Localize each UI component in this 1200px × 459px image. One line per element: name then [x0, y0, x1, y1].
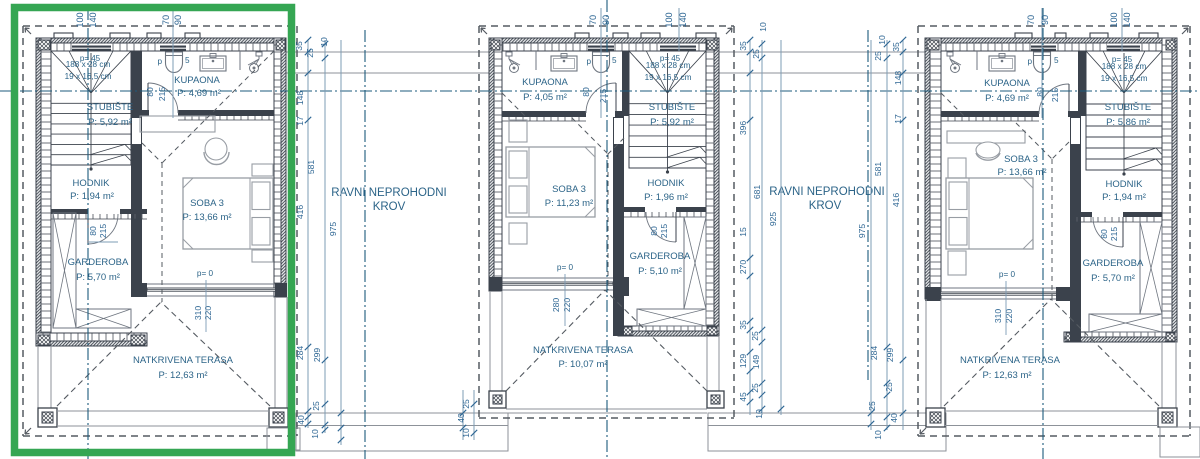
svg-text:70: 70: [161, 15, 171, 25]
svg-text:35: 35: [294, 41, 304, 51]
svg-text:148: 148: [893, 71, 903, 86]
svg-text:P: 4,69 m²: P: 4,69 m²: [177, 88, 221, 99]
svg-text:GARDEROBA: GARDEROBA: [68, 257, 129, 268]
svg-text:148: 148: [295, 91, 305, 106]
svg-text:299: 299: [312, 348, 322, 363]
svg-text:5: 5: [1054, 56, 1059, 65]
svg-text:35: 35: [738, 320, 748, 330]
svg-text:RAVNI NEPROHODNI: RAVNI NEPROHODNI: [331, 187, 446, 199]
svg-text:25: 25: [750, 331, 760, 341]
svg-text:25: 25: [311, 401, 321, 411]
svg-text:P: 1,96 m²: P: 1,96 m²: [644, 192, 688, 203]
svg-text:NATKRIVENA TERASA: NATKRIVENA TERASA: [533, 345, 634, 356]
svg-text:40: 40: [889, 413, 899, 423]
svg-text:p= 0: p= 0: [557, 263, 574, 272]
svg-text:19 x 16,5 cm: 19 x 16,5 cm: [1101, 74, 1148, 83]
svg-text:STUBIŠTE: STUBIŠTE: [87, 102, 133, 113]
svg-text:220: 220: [203, 306, 213, 321]
svg-text:25: 25: [884, 382, 894, 392]
svg-text:280: 280: [551, 298, 561, 313]
svg-text:p: p: [1027, 57, 1032, 66]
svg-text:p= 0: p= 0: [197, 269, 214, 278]
svg-text:299: 299: [885, 348, 895, 363]
svg-text:P: 5,10 m²: P: 5,10 m²: [638, 266, 682, 277]
svg-text:25: 25: [867, 401, 877, 411]
svg-text:10: 10: [461, 428, 471, 438]
svg-text:10: 10: [758, 22, 768, 32]
svg-text:P: 12,63 m²: P: 12,63 m²: [982, 370, 1031, 381]
svg-text:80: 80: [145, 87, 155, 97]
svg-text:P: 10,07 m²: P: 10,07 m²: [558, 359, 607, 370]
svg-text:KROV: KROV: [373, 201, 406, 213]
svg-text:KUPAONA: KUPAONA: [984, 78, 1030, 89]
svg-text:P: 5,92 m²: P: 5,92 m²: [88, 117, 132, 128]
svg-text:140: 140: [1122, 12, 1132, 27]
svg-text:188 x 28 cm: 188 x 28 cm: [646, 61, 691, 70]
svg-text:NATKRIVENA TERASA: NATKRIVENA TERASA: [133, 355, 234, 366]
svg-text:17: 17: [295, 116, 305, 126]
svg-text:p: p: [157, 57, 162, 66]
svg-text:70: 70: [1026, 15, 1036, 25]
svg-text:10: 10: [310, 429, 320, 439]
svg-text:P: 13,66 m²: P: 13,66 m²: [997, 167, 1046, 178]
svg-text:GARDEROBA: GARDEROBA: [1083, 258, 1144, 269]
svg-text:45: 45: [738, 392, 748, 402]
svg-text:975: 975: [857, 224, 867, 239]
svg-text:P: 5,70 m²: P: 5,70 m²: [76, 272, 120, 283]
svg-text:P: 4,05 m²: P: 4,05 m²: [523, 92, 567, 103]
svg-text:90: 90: [601, 15, 611, 25]
svg-text:581: 581: [306, 160, 316, 175]
svg-text:HODNIK: HODNIK: [73, 178, 111, 189]
svg-text:p: p: [586, 57, 591, 66]
svg-text:GARDEROBA: GARDEROBA: [630, 251, 691, 262]
svg-text:220: 220: [1004, 309, 1014, 324]
svg-text:HODNIK: HODNIK: [648, 178, 686, 189]
svg-text:P: 13,66 m²: P: 13,66 m²: [182, 212, 231, 223]
svg-text:P: 12,63 m²: P: 12,63 m²: [158, 370, 207, 381]
svg-text:220: 220: [562, 298, 572, 313]
svg-text:SOBA 3: SOBA 3: [190, 198, 224, 209]
svg-text:15: 15: [738, 227, 748, 237]
svg-text:581: 581: [873, 162, 883, 177]
svg-text:25: 25: [751, 49, 761, 59]
svg-text:270: 270: [738, 260, 748, 275]
svg-text:35: 35: [891, 42, 901, 52]
svg-text:19 x 16,5 cm: 19 x 16,5 cm: [645, 73, 692, 82]
svg-text:35: 35: [738, 41, 748, 51]
svg-text:STUBIŠTE: STUBIŠTE: [649, 102, 695, 113]
svg-text:80: 80: [88, 226, 98, 236]
svg-text:215: 215: [157, 87, 167, 102]
svg-text:215: 215: [1109, 227, 1119, 242]
svg-text:40: 40: [296, 415, 306, 425]
svg-text:KUPAONA: KUPAONA: [522, 77, 568, 88]
svg-text:p= 0: p= 0: [999, 270, 1016, 279]
svg-text:215: 215: [1050, 88, 1060, 103]
svg-text:STUBIŠTE: STUBIŠTE: [1105, 102, 1151, 113]
svg-text:188 x 28 cm: 188 x 28 cm: [1102, 62, 1147, 71]
svg-text:KUPAONA: KUPAONA: [174, 75, 220, 86]
svg-text:HODNIK: HODNIK: [1106, 179, 1144, 190]
svg-text:396: 396: [738, 121, 748, 136]
svg-text:80: 80: [1099, 229, 1109, 239]
svg-text:10: 10: [873, 430, 883, 440]
svg-text:P: 11,23 m²: P: 11,23 m²: [545, 198, 593, 209]
svg-text:215: 215: [98, 224, 108, 239]
svg-text:P: 5,70 m²: P: 5,70 m²: [1091, 273, 1135, 284]
svg-text:100: 100: [1109, 12, 1119, 27]
svg-text:NATKRIVENA TERASA: NATKRIVENA TERASA: [960, 355, 1061, 366]
svg-text:P: 5,86 m²: P: 5,86 m²: [1106, 117, 1150, 128]
svg-text:25: 25: [873, 51, 883, 61]
svg-text:100: 100: [75, 12, 85, 27]
svg-text:25: 25: [750, 383, 760, 393]
svg-text:40: 40: [456, 413, 466, 423]
svg-text:310: 310: [993, 309, 1003, 324]
svg-text:P: 4,69 m²: P: 4,69 m²: [985, 93, 1029, 104]
svg-text:10: 10: [877, 35, 887, 45]
svg-text:90: 90: [1040, 15, 1050, 25]
svg-text:10: 10: [754, 409, 764, 419]
svg-text:KROV: KROV: [809, 200, 842, 212]
svg-text:310: 310: [193, 306, 203, 321]
svg-text:SOBA 3: SOBA 3: [1004, 154, 1038, 165]
svg-text:925: 925: [768, 212, 778, 227]
svg-text:284: 284: [869, 346, 879, 361]
svg-text:80: 80: [581, 87, 591, 97]
svg-text:5: 5: [612, 56, 617, 65]
svg-text:10: 10: [319, 37, 329, 47]
svg-text:P: 1,94 m²: P: 1,94 m²: [1102, 192, 1146, 203]
svg-text:P: 1,94 m²: P: 1,94 m²: [70, 191, 114, 202]
svg-text:90: 90: [173, 15, 183, 25]
svg-text:70: 70: [588, 15, 598, 25]
svg-text:5: 5: [185, 56, 190, 65]
svg-text:25: 25: [305, 48, 315, 58]
svg-text:129: 129: [738, 354, 748, 369]
svg-text:17: 17: [893, 114, 903, 124]
svg-text:284: 284: [295, 346, 305, 361]
svg-text:140: 140: [678, 12, 688, 27]
svg-text:416: 416: [295, 205, 305, 220]
svg-text:80: 80: [649, 226, 659, 236]
svg-text:681: 681: [752, 185, 762, 200]
svg-text:100: 100: [664, 12, 674, 27]
svg-text:149: 149: [751, 355, 761, 370]
svg-text:RAVNI NEPROHODNI: RAVNI NEPROHODNI: [769, 186, 884, 198]
svg-text:P: 5,92 m²: P: 5,92 m²: [650, 117, 694, 128]
svg-text:25: 25: [461, 399, 471, 409]
svg-text:416: 416: [891, 193, 901, 208]
svg-text:975: 975: [328, 222, 338, 237]
svg-text:SOBA 3: SOBA 3: [552, 184, 586, 195]
svg-text:140: 140: [88, 12, 98, 27]
svg-text:215: 215: [659, 224, 669, 239]
